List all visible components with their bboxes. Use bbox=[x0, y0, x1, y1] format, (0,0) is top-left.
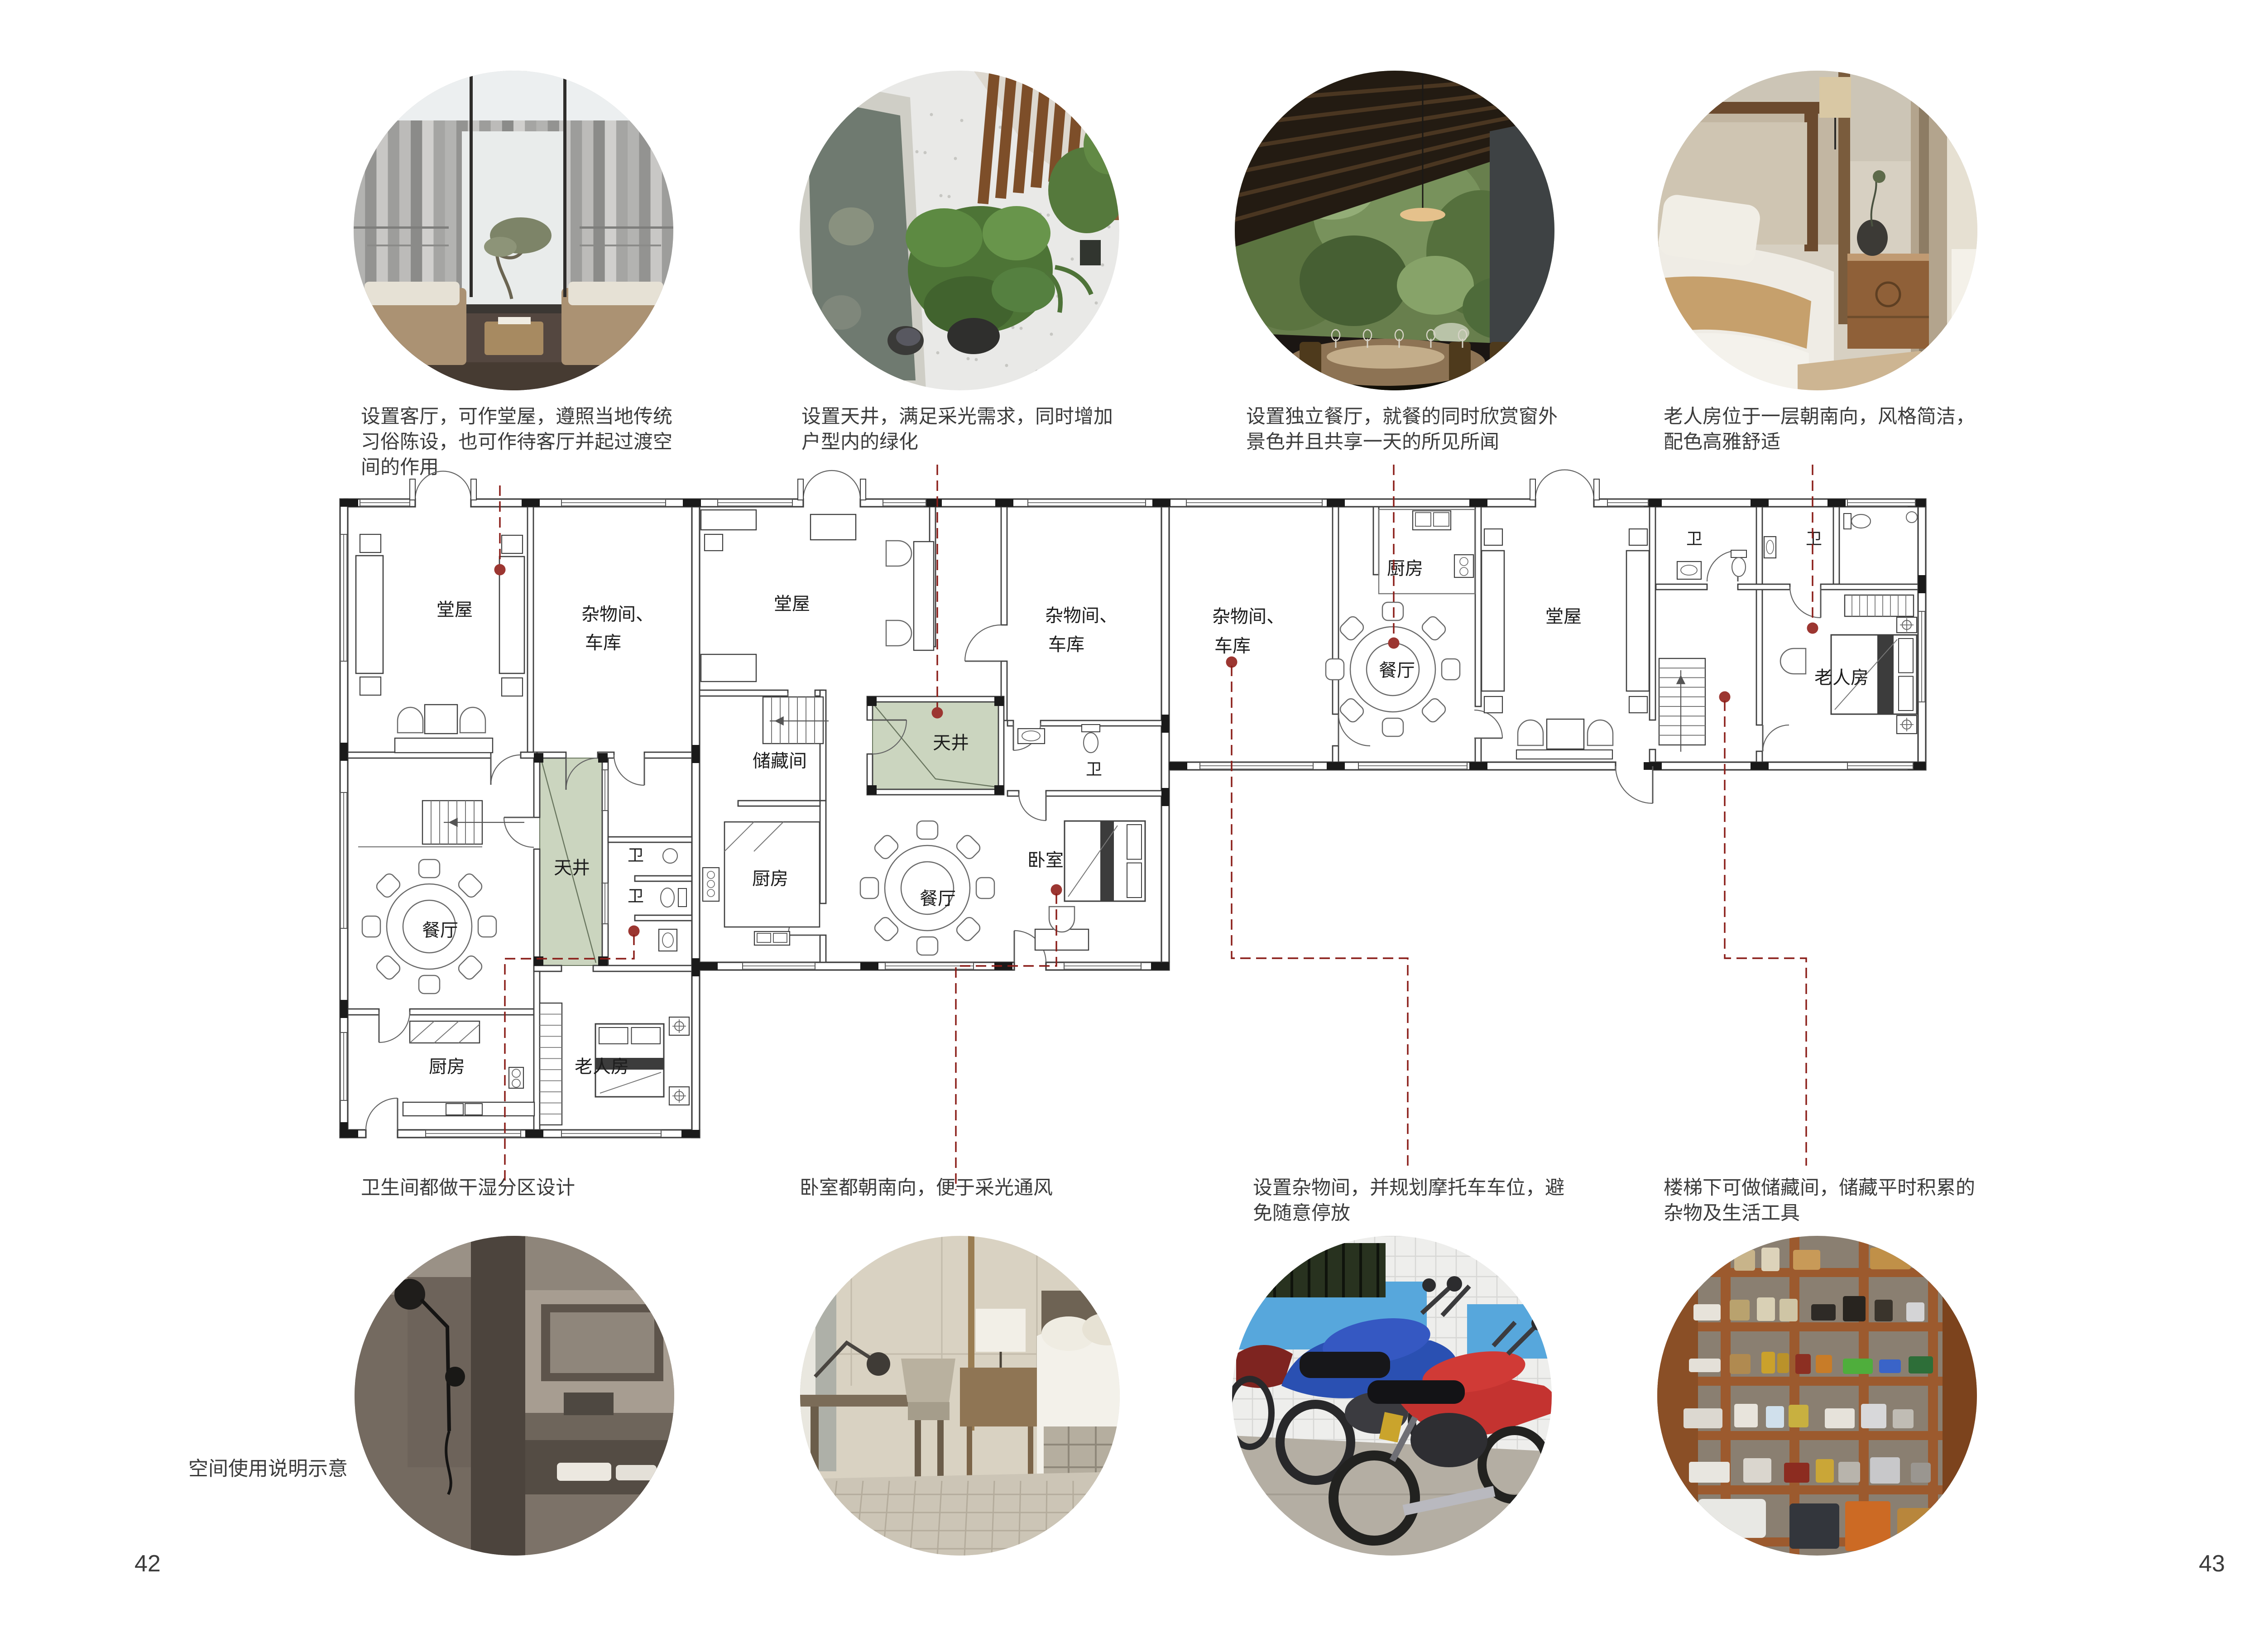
svg-text:43: 43 bbox=[2199, 1551, 2225, 1577]
svg-text:42: 42 bbox=[134, 1551, 161, 1577]
